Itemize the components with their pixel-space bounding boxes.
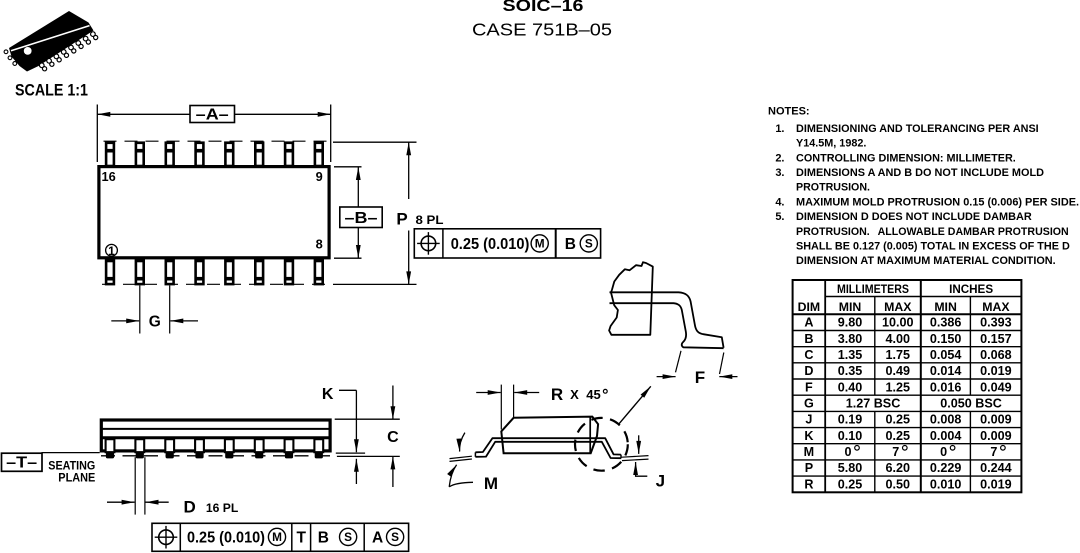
svg-text:45: 45 <box>586 387 600 402</box>
svg-text:PROTRUSION.: PROTRUSION. <box>796 182 870 194</box>
svg-text:M: M <box>484 474 498 493</box>
svg-text:D: D <box>184 497 196 516</box>
svg-text:SHALL BE 0.127 (0.005) TOTAL I: SHALL BE 0.127 (0.005) TOTAL IN EXCESS O… <box>796 241 1070 253</box>
svg-text:9.80: 9.80 <box>838 316 863 330</box>
svg-text:0.019: 0.019 <box>980 364 1012 378</box>
svg-text:MAXIMUM MOLD PROTRUSION 0.15 (: MAXIMUM MOLD PROTRUSION 0.15 (0.006) PER… <box>796 196 1079 208</box>
svg-text:MILLIMETERS: MILLIMETERS <box>837 282 909 296</box>
svg-text:0.25: 0.25 <box>886 413 911 427</box>
svg-text:DIMENSIONING AND TOLERANCING P: DIMENSIONING AND TOLERANCING PER ANSI <box>796 123 1039 135</box>
svg-text:R: R <box>804 477 813 491</box>
svg-text:DIMENSIONS A AND B DO NOT INCL: DIMENSIONS A AND B DO NOT INCLUDE MOLD <box>796 167 1044 179</box>
svg-text:0.009: 0.009 <box>980 413 1012 427</box>
svg-text:S: S <box>391 530 399 544</box>
svg-text:CASE 751B–05: CASE 751B–05 <box>472 19 612 39</box>
svg-text:8 PL: 8 PL <box>416 213 445 227</box>
svg-text:0.25: 0.25 <box>838 477 863 491</box>
svg-text:0.150: 0.150 <box>930 332 962 346</box>
svg-text:F: F <box>695 368 705 387</box>
svg-text:1.: 1. <box>775 123 784 135</box>
svg-text:1.35: 1.35 <box>838 348 863 362</box>
svg-text:B: B <box>318 530 329 547</box>
svg-text:0.386: 0.386 <box>930 316 962 330</box>
svg-text:P: P <box>805 461 813 475</box>
svg-text:P: P <box>396 210 407 229</box>
svg-text:R: R <box>551 385 563 404</box>
svg-text:7: 7 <box>892 445 899 459</box>
svg-text:DIM: DIM <box>798 300 821 314</box>
svg-text:S: S <box>585 237 593 251</box>
svg-text:C: C <box>804 348 813 362</box>
svg-text:2.: 2. <box>775 152 784 164</box>
svg-text:0.35: 0.35 <box>838 364 863 378</box>
svg-text:T: T <box>296 530 306 547</box>
svg-text:PLANE: PLANE <box>58 471 95 485</box>
svg-text:0.014: 0.014 <box>930 364 962 378</box>
svg-text:CONTROLLING DIMENSION: MILLIME: CONTROLLING DIMENSION: MILLIMETER. <box>796 152 1016 164</box>
svg-text:SCALE 1:1: SCALE 1:1 <box>15 81 88 100</box>
svg-text:0.157: 0.157 <box>980 332 1012 346</box>
svg-text:DIMENSION D DOES NOT INCLUDE D: DIMENSION D DOES NOT INCLUDE DAMBAR <box>796 211 1032 223</box>
svg-text:0.016: 0.016 <box>930 380 962 394</box>
svg-text:MAX: MAX <box>884 300 912 314</box>
svg-text:NOTES:: NOTES: <box>768 106 810 118</box>
svg-text:A: A <box>804 316 813 330</box>
svg-text:–T–: –T– <box>6 454 37 471</box>
svg-text:0.049: 0.049 <box>980 380 1012 394</box>
svg-text:J: J <box>656 471 665 490</box>
svg-text:4.: 4. <box>775 196 784 208</box>
svg-text:–B–: –B– <box>345 210 378 227</box>
svg-text:0.054: 0.054 <box>930 348 962 362</box>
svg-text:F: F <box>805 380 813 394</box>
svg-text:5.80: 5.80 <box>838 461 863 475</box>
svg-text:C: C <box>387 429 399 446</box>
svg-text:0.068: 0.068 <box>980 348 1012 362</box>
svg-text:Y14.5M, 1982.: Y14.5M, 1982. <box>796 138 866 150</box>
svg-text:K: K <box>804 429 813 443</box>
svg-text:16 PL: 16 PL <box>206 501 239 515</box>
svg-text:J: J <box>805 413 812 427</box>
svg-text:0.25 (0.010): 0.25 (0.010) <box>451 236 530 253</box>
svg-text:K: K <box>322 386 334 403</box>
svg-text:M: M <box>272 530 282 544</box>
svg-text:0.50: 0.50 <box>886 477 911 491</box>
svg-text:0.229: 0.229 <box>930 461 962 475</box>
svg-text:0.25: 0.25 <box>886 429 911 443</box>
svg-text:0.19: 0.19 <box>838 413 863 427</box>
svg-text:B: B <box>565 236 576 253</box>
svg-text:10.00: 10.00 <box>882 316 914 330</box>
svg-text:0.004: 0.004 <box>930 429 962 443</box>
svg-text:7: 7 <box>990 445 997 459</box>
svg-text:D: D <box>804 364 813 378</box>
svg-text:0.10: 0.10 <box>838 429 863 443</box>
svg-text:1: 1 <box>108 244 115 258</box>
svg-text:1.27 BSC: 1.27 BSC <box>846 397 901 411</box>
svg-text:0.009: 0.009 <box>980 429 1012 443</box>
svg-text:4.00: 4.00 <box>886 332 911 346</box>
svg-text:SOIC–16: SOIC–16 <box>503 0 584 15</box>
svg-text:0.393: 0.393 <box>980 316 1012 330</box>
svg-text:G: G <box>804 397 814 411</box>
svg-text:0.25 (0.010): 0.25 (0.010) <box>187 530 265 547</box>
svg-text:1.25: 1.25 <box>886 380 911 394</box>
svg-text:0.010: 0.010 <box>930 477 962 491</box>
svg-text:INCHES: INCHES <box>949 282 993 296</box>
svg-text:0.40: 0.40 <box>838 380 863 394</box>
svg-text:0: 0 <box>940 445 947 459</box>
svg-text:MIN: MIN <box>839 300 862 314</box>
svg-text:M: M <box>535 237 545 251</box>
svg-text:9: 9 <box>316 169 323 184</box>
svg-text:S: S <box>344 530 352 544</box>
svg-text:1.75: 1.75 <box>886 348 911 362</box>
svg-text:5.: 5. <box>775 211 784 223</box>
svg-text:0: 0 <box>844 445 851 459</box>
svg-text:X: X <box>570 387 579 402</box>
svg-text:6.20: 6.20 <box>886 461 911 475</box>
svg-text:A: A <box>372 530 383 547</box>
svg-text:16: 16 <box>102 169 116 184</box>
svg-text:3.80: 3.80 <box>838 332 863 346</box>
svg-text:B: B <box>804 332 813 346</box>
svg-text:3.: 3. <box>775 167 784 179</box>
svg-text:PROTRUSION. ALLOWABLE DAMBAR: PROTRUSION. ALLOWABLE DAMBAR PROTRUSION <box>796 226 1069 238</box>
svg-text:G: G <box>149 314 161 331</box>
svg-text:0.49: 0.49 <box>886 364 911 378</box>
svg-text:MAX: MAX <box>982 300 1010 314</box>
svg-text:–A–: –A– <box>196 106 229 123</box>
svg-text:0.019: 0.019 <box>980 477 1012 491</box>
svg-text:DIMENSION AT MAXIMUM MATERIAL: DIMENSION AT MAXIMUM MATERIAL CONDITION. <box>796 255 1056 267</box>
svg-text:0.050 BSC: 0.050 BSC <box>940 397 1002 411</box>
svg-text:0.244: 0.244 <box>980 461 1012 475</box>
svg-text:0.008: 0.008 <box>930 413 962 427</box>
svg-text:MIN: MIN <box>934 300 957 314</box>
svg-text:M: M <box>804 445 815 459</box>
svg-text:8: 8 <box>316 237 323 252</box>
